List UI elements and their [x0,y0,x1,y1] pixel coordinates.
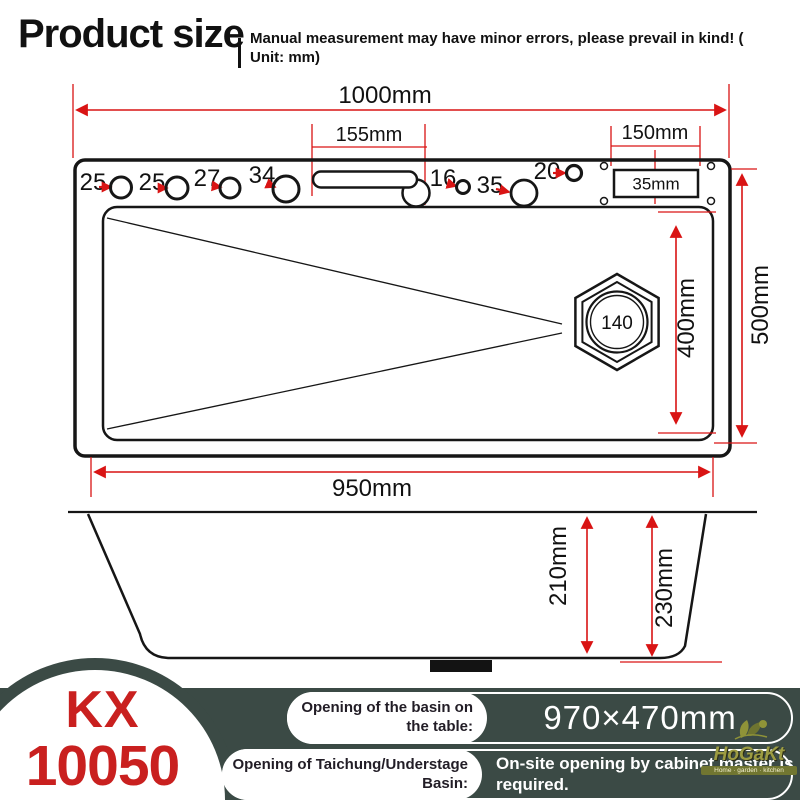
dim-overall-height-label: 230mm [651,548,678,628]
drain-size-label: 140 [601,313,633,334]
basin-slope-line-bottom [107,333,562,429]
top-view: 1000mm 155mm 150mm [73,82,774,502]
spec-label-undermount-opening: Opening of Taichung/Understage Basin: [222,749,482,800]
model-line1: KX [0,684,205,736]
model-number: KX 10050 [0,684,205,795]
dim-basin-height-label: 210mm [545,526,572,606]
dim-basin-height: 210mm [545,518,587,652]
dim-overflow-label: 35mm [632,175,679,194]
side-view-body [88,514,706,658]
sink-outer-outline [75,160,730,456]
hole-label: 25 [139,169,166,196]
dim-overall-width-label: 1000mm [338,82,431,109]
hole-label: 25 [80,169,107,196]
sink-drawing: 1000mm 155mm 150mm [0,78,800,678]
hole-label: 20 [534,158,561,185]
basin-slope-line-top [107,218,562,324]
overflow-opening: 35mm [614,170,698,197]
faucet-slot [313,172,430,207]
model-line2: 10050 [0,738,205,795]
hole-label: 27 [194,165,221,192]
dim-basin-width-label: 950mm [332,475,412,502]
spec-label-table-opening: Opening of the basin on the table: [287,692,487,744]
product-size-page: Product size Manual measurement may have… [0,0,800,800]
drain: 140 [575,274,658,370]
page-title: Product size [18,12,244,57]
hole-label: 35 [477,172,504,199]
title-divider [238,38,241,68]
side-view-drain-fitting [430,660,492,672]
brand-tagline: Home · garden · kitchen [701,766,797,775]
measurement-note: Manual measurement may have minor errors… [250,30,775,68]
dim-basin-depth: 400mm [658,212,716,433]
dim-basin-width: 950mm [91,457,713,502]
hole-label: 16 [430,165,457,192]
dim-overall-height: 230mm [651,517,678,655]
dim-overall-depth: 500mm [714,169,774,443]
dim-faucet-slot-label: 155mm [336,124,403,146]
side-view: 210mm 230mm [68,512,757,672]
deck-holes: 25 25 27 34 16 [80,158,715,207]
dim-basin-depth-label: 400mm [673,278,700,358]
dim-overall-depth-label: 500mm [747,265,774,345]
dim-right-deck-label: 150mm [622,122,689,144]
brand-logo: HoGaKt Home · garden · kitchen [701,716,797,775]
brand-name: HoGaKt [701,745,797,764]
leaf-icon [727,716,771,740]
